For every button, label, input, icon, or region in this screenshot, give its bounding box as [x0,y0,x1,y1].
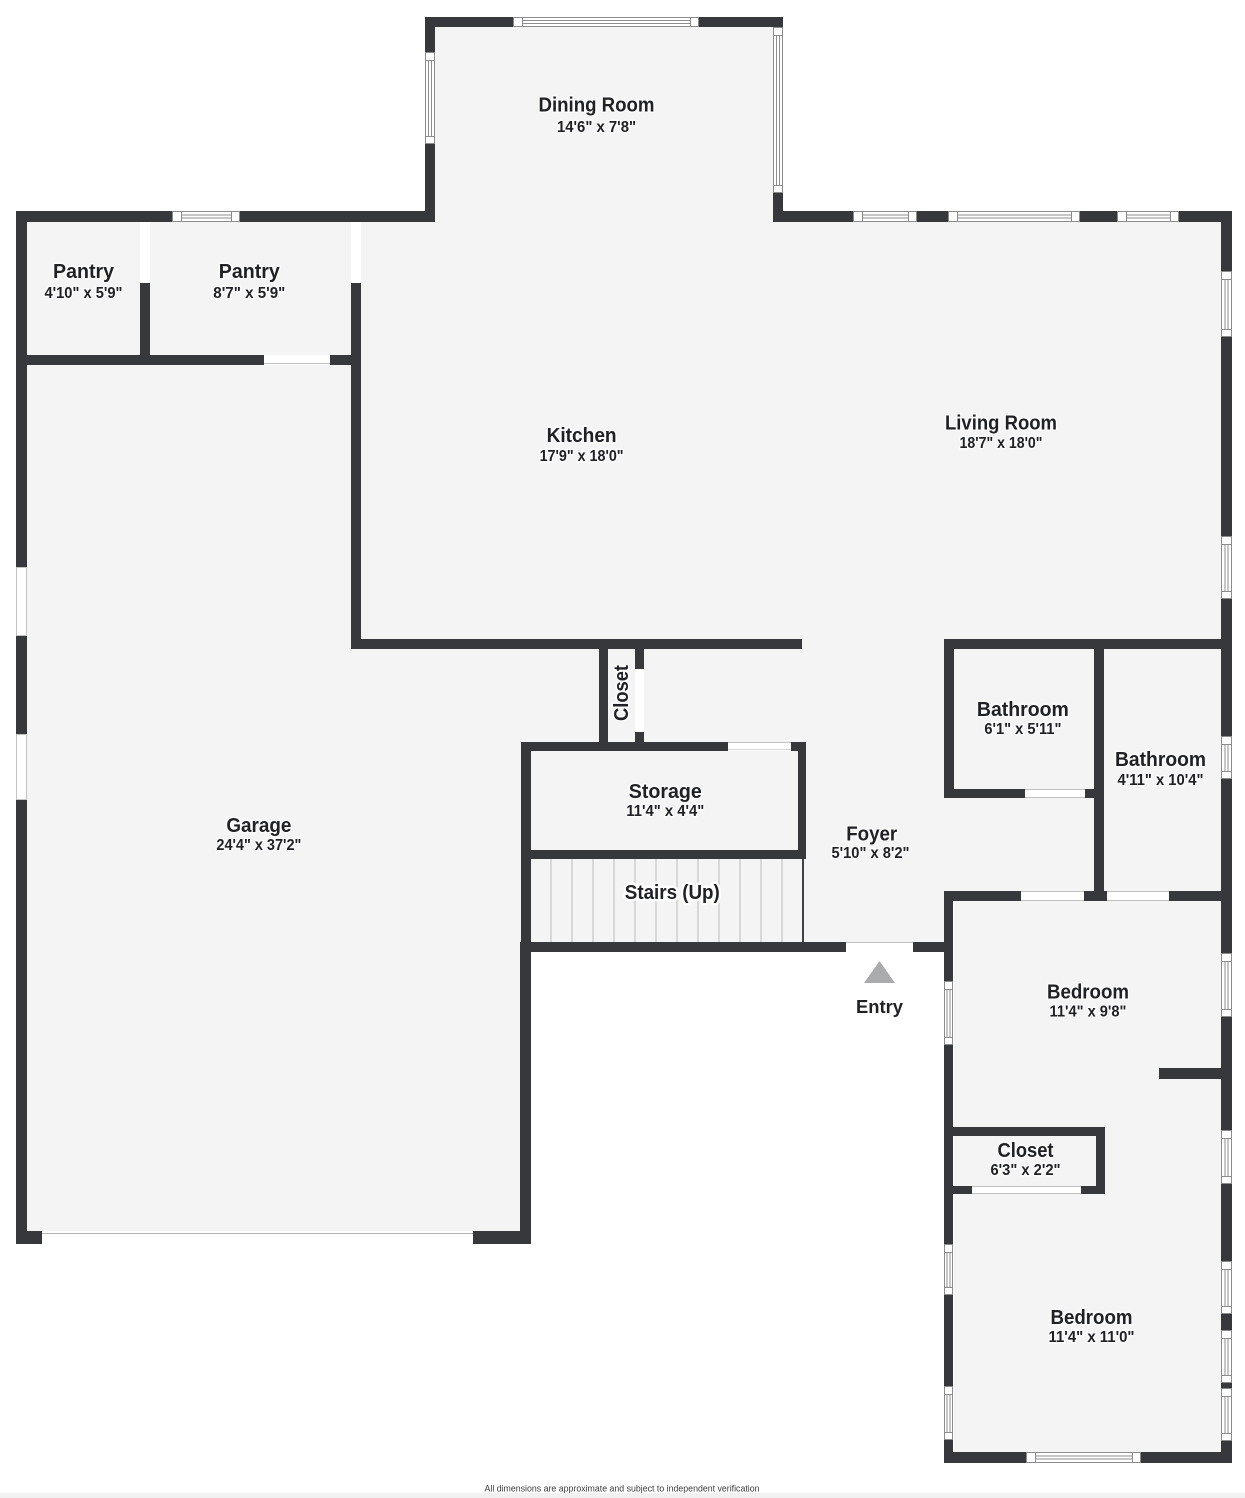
svg-text:6'1" x 5'11": 6'1" x 5'11" [984,721,1061,738]
svg-text:Closet: Closet [998,1140,1054,1162]
svg-text:6'3" x 2'2": 6'3" x 2'2" [991,1162,1061,1179]
svg-text:4'10" x 5'9": 4'10" x 5'9" [45,285,123,302]
svg-text:Pantry: Pantry [219,261,281,283]
svg-text:Bedroom: Bedroom [1047,981,1129,1003]
svg-text:Bedroom: Bedroom [1051,1307,1133,1329]
svg-text:11'4" x 4'4": 11'4" x 4'4" [626,803,704,820]
svg-text:Bathroom: Bathroom [1115,749,1206,771]
svg-text:11'4" x 9'8": 11'4" x 9'8" [1050,1003,1127,1020]
svg-text:All dimensions are approximate: All dimensions are approximate and subje… [485,1484,760,1494]
svg-text:14'6" x 7'8": 14'6" x 7'8" [557,119,636,136]
svg-text:24'4" x 37'2": 24'4" x 37'2" [216,837,301,854]
svg-text:Stairs (Up): Stairs (Up) [625,882,720,904]
svg-text:Foyer: Foyer [846,824,897,846]
svg-text:Closet: Closet [611,665,633,721]
svg-text:Entry: Entry [856,997,903,1017]
svg-text:11'4" x 11'0": 11'4" x 11'0" [1049,1329,1135,1346]
svg-text:8'7" x 5'9": 8'7" x 5'9" [213,285,285,302]
svg-text:17'9" x 18'0": 17'9" x 18'0" [540,448,624,465]
svg-text:Pantry: Pantry [53,261,115,283]
svg-text:Living Room: Living Room [945,413,1057,435]
svg-text:Dining Room: Dining Room [539,94,655,116]
svg-text:5'10" x 8'2": 5'10" x 8'2" [832,845,910,862]
svg-text:Kitchen: Kitchen [547,425,617,447]
svg-text:4'11" x 10'4": 4'11" x 10'4" [1118,772,1204,789]
svg-text:Garage: Garage [226,815,291,837]
svg-text:Bathroom: Bathroom [977,699,1069,721]
svg-text:Storage: Storage [629,781,702,803]
svg-text:18'7" x 18'0": 18'7" x 18'0" [960,435,1043,452]
